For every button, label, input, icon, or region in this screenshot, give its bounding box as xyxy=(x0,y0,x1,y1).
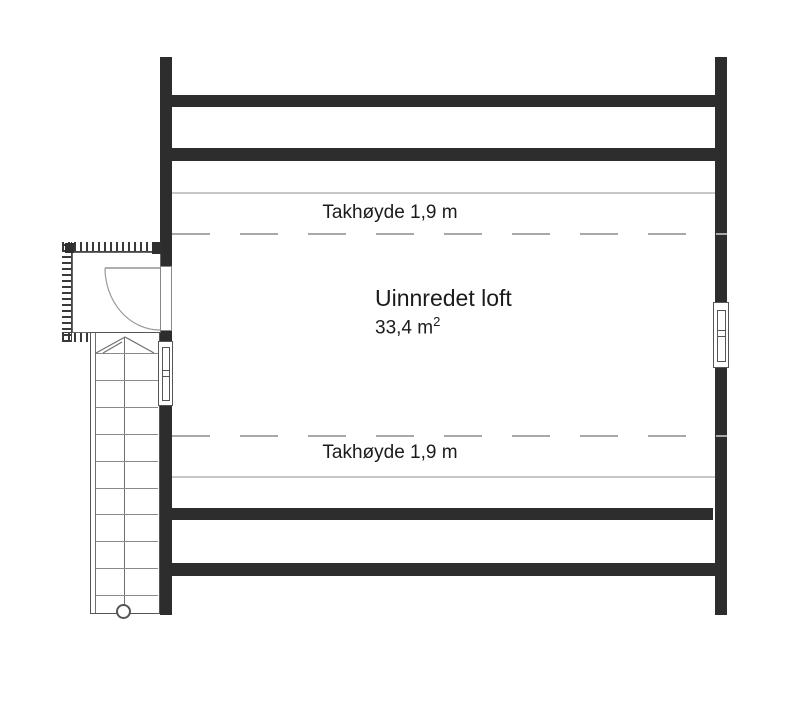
room-area-value: 33,4 m xyxy=(375,317,433,338)
window-divider xyxy=(162,376,170,377)
top-inner-beam xyxy=(160,148,715,161)
staircase xyxy=(90,332,160,614)
ceiling-height-dashed-line-top xyxy=(172,233,727,235)
stair-tread xyxy=(96,488,158,489)
stair-tread xyxy=(96,541,158,542)
room-area: 33,4 m2 xyxy=(375,311,512,339)
top-outer-wall xyxy=(160,95,727,107)
right-wall-window-icon xyxy=(713,302,729,368)
floorplan-canvas: Takhøyde 1,9 m Takhøyde 1,9 m Uinnredet … xyxy=(0,0,800,720)
left-wall-upper-segment xyxy=(160,57,172,266)
window-divider xyxy=(717,330,726,331)
stair-newel-circle-icon xyxy=(116,604,131,619)
room-area-exponent: 2 xyxy=(433,314,440,329)
vestibule-corner-post-left xyxy=(65,243,74,253)
vestibule-left-wall xyxy=(62,242,72,342)
vestibule-top-wall xyxy=(62,242,162,252)
vestibule-corner-post-right xyxy=(152,242,162,254)
ceiling-height-dashed-line-bottom xyxy=(172,435,727,437)
right-wall-lower-segment xyxy=(715,368,727,615)
window-divider xyxy=(162,370,170,371)
ceiling-height-label-bottom: Takhøyde 1,9 m xyxy=(285,442,495,464)
knee-wall-line-bottom xyxy=(172,476,715,478)
stair-tread xyxy=(96,568,158,569)
knee-wall-line-top xyxy=(172,192,715,194)
window-divider xyxy=(717,336,726,337)
bottom-inner-beam xyxy=(160,508,713,520)
room-name: Uinnredet loft xyxy=(375,285,512,311)
left-wall-window-icon xyxy=(158,341,173,406)
stair-tread xyxy=(96,434,158,435)
ceiling-height-label-top: Takhøyde 1,9 m xyxy=(285,202,495,224)
bottom-outer-wall xyxy=(160,563,727,576)
stair-stringer-line xyxy=(95,333,96,613)
stair-tread xyxy=(96,461,158,462)
right-wall-upper-segment xyxy=(715,57,727,302)
window-pane xyxy=(162,347,170,401)
vestibule-bottom-wall xyxy=(62,332,92,342)
stair-center-line xyxy=(124,337,125,613)
room-label: Uinnredet loft 33,4 m2 xyxy=(375,285,512,339)
stair-tread xyxy=(96,407,158,408)
stair-tread xyxy=(96,380,158,381)
stair-tread xyxy=(96,595,158,596)
stair-direction-chevron-icon xyxy=(91,333,159,363)
stair-tread xyxy=(96,514,158,515)
